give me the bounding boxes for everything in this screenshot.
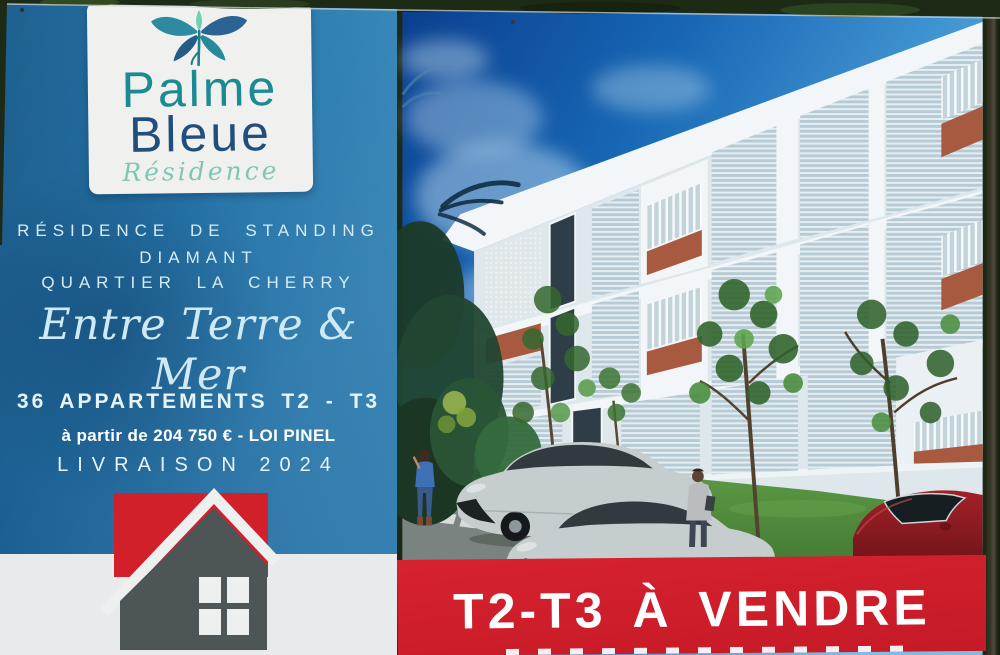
delivery-line: LIVRAISON 2024 — [0, 454, 397, 477]
brand-name-bleue: Bleue — [88, 112, 312, 157]
palm-leaves-icon — [147, 7, 252, 66]
diamant-line: DIAMANT — [0, 248, 397, 268]
for-sale-title: T2-T3 À VENDRE — [397, 581, 986, 638]
background-tree-trunk — [986, 0, 1000, 655]
house-icon — [100, 488, 282, 655]
tagline-script: Entre Terre & Mer — [0, 300, 397, 400]
billboard-photo: RÉSIDENCE DE STANDING DIAMANT QUARTIER L… — [0, 0, 1000, 655]
brand-logo-card: Palme Bleue Résidence — [87, 0, 313, 194]
residence-standing-line: RÉSIDENCE DE STANDING — [0, 221, 397, 241]
for-sale-banner: T2-T3 À VENDRE — [397, 555, 987, 655]
price-line: à partir de 204 750 € - LOI PINEL — [0, 426, 397, 446]
apartments-count-line: 36 APPARTEMENTS T2 - T3 — [0, 390, 397, 414]
brand-residence-script: Résidence — [89, 156, 313, 189]
quartier-line: QUARTIER LA CHERRY — [0, 273, 397, 293]
